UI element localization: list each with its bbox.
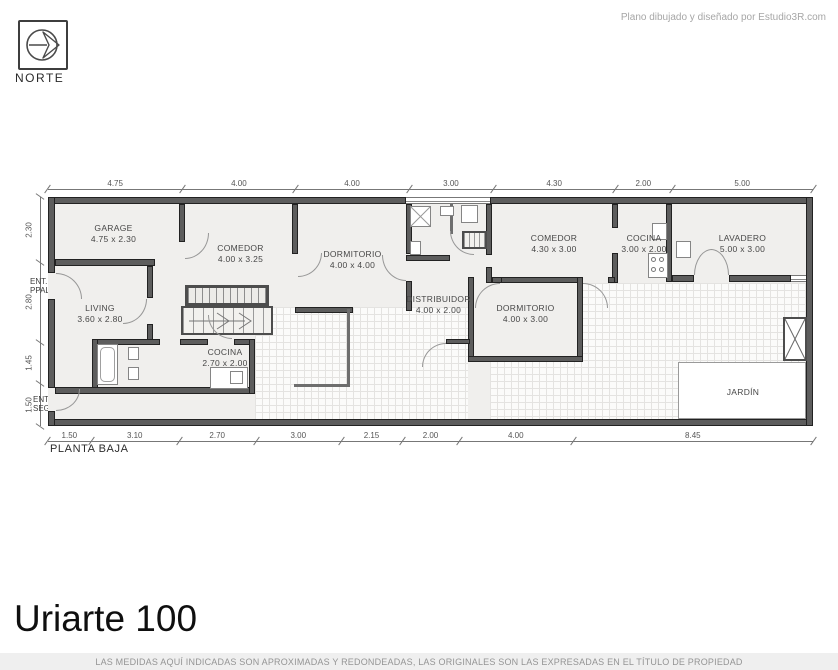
dimension-segment: 1.50 — [48, 429, 91, 442]
dimension-value: 4.30 — [493, 179, 615, 188]
stair-landing — [185, 285, 269, 306]
disclaimer-bar: LAS MEDIDAS AQUÍ INDICADAS SON APROXIMAD… — [0, 653, 838, 670]
dimension-value: 3.10 — [91, 431, 179, 440]
dimension-value: 3.00 — [409, 179, 494, 188]
wall-segment — [147, 266, 153, 298]
room-label-dormitorio-2: DORMITORIO4.00 x 3.00 — [472, 303, 579, 325]
cross-lines — [785, 319, 805, 359]
wall-segment — [48, 411, 55, 426]
dimension-value: 2.15 — [341, 431, 402, 440]
washing-machine — [461, 205, 478, 223]
dimension-value: 4.00 — [459, 431, 573, 440]
dimension-value: 2.80 — [25, 294, 34, 310]
bathroom-sink — [440, 206, 454, 216]
kitchen-sink — [230, 371, 243, 384]
left-dimension-column: 2.302.801.451.50 — [24, 197, 41, 426]
room-label-cocina-1: COCINA2.70 x 2.00 — [178, 347, 272, 369]
dimension-value: 1.50 — [48, 431, 91, 440]
dimension-segment: 4.30 — [493, 174, 615, 190]
floor-plan: GARAGE4.75 x 2.30 COMEDOR4.00 x 3.25 DOR… — [48, 197, 813, 426]
wall-segment — [446, 339, 470, 344]
door-swing — [450, 231, 474, 255]
credit-text: Plano dibujado y diseñado por Estudio3R.… — [621, 12, 826, 23]
wall-segment — [608, 277, 615, 283]
dimension-value: 8.45 — [573, 431, 813, 440]
page-title: Uriarte 100 — [14, 598, 197, 640]
top-dimension-row: 4.754.004.003.004.302.005.00 — [48, 174, 813, 190]
north-arrow-icon — [18, 20, 68, 70]
room-label-comedor-1: COMEDOR4.00 x 3.25 — [193, 243, 288, 265]
wall-segment — [806, 197, 813, 426]
wall-segment — [612, 204, 618, 228]
north-arrow-glyph — [22, 24, 64, 66]
wall-segment — [295, 307, 353, 313]
wall-segment — [48, 419, 813, 426]
room-label-comedor-2: COMEDOR4.30 x 3.00 — [500, 233, 608, 255]
dimension-value: 2.70 — [179, 431, 256, 440]
wall-segment — [672, 275, 694, 282]
wall-segment — [490, 197, 813, 204]
wall-segment — [55, 259, 155, 266]
toilet — [410, 241, 421, 255]
door-swing — [56, 273, 82, 299]
room-label-garage: GARAGE4.75 x 2.30 — [66, 223, 161, 245]
room-label-dormitorio-1: DORMITORIO4.00 x 4.00 — [300, 249, 405, 271]
dimension-value: 1.45 — [25, 355, 34, 371]
dimension-segment: 8.45 — [573, 429, 813, 442]
dimension-value: 4.00 — [295, 179, 408, 188]
wall-segment — [729, 275, 791, 282]
door-swing — [56, 389, 80, 411]
dimension-segment: 5.00 — [672, 174, 813, 190]
wall-segment — [48, 197, 55, 273]
window — [791, 275, 806, 282]
dimension-segment: 4.00 — [459, 429, 573, 442]
dimension-segment: 2.80 — [24, 262, 41, 342]
dimension-segment: 2.30 — [24, 197, 41, 262]
wall-segment — [406, 255, 450, 261]
toilet — [128, 347, 139, 360]
room-label-lavadero: LAVADERO5.00 x 3.00 — [690, 233, 795, 255]
dimension-segment: 1.45 — [24, 342, 41, 383]
window — [406, 197, 490, 204]
north-label: NORTE — [15, 71, 64, 85]
wall-segment — [48, 197, 406, 204]
dimension-segment: 3.10 — [91, 429, 179, 442]
bathtub — [97, 344, 118, 385]
dimension-value: 2.00 — [402, 431, 459, 440]
room-label-cocina-2: COCINA3.00 x 2.00 — [598, 233, 690, 255]
bidet — [128, 367, 139, 380]
shower — [410, 206, 431, 227]
wall-segment — [292, 204, 298, 254]
room-label-jardin: JARDÍN — [693, 387, 793, 398]
dimension-segment: 4.00 — [295, 174, 408, 190]
dimension-value: 4.75 — [48, 179, 182, 188]
wall-segment — [468, 356, 583, 362]
dimension-value: 3.00 — [256, 431, 341, 440]
plan-title: PLANTA BAJA — [50, 443, 129, 455]
low-wall — [294, 384, 350, 387]
dimension-segment: 2.70 — [179, 429, 256, 442]
dimension-segment: 3.00 — [409, 174, 494, 190]
disclaimer-text: LAS MEDIDAS AQUÍ INDICADAS SON APROXIMAD… — [95, 657, 742, 667]
low-wall — [347, 309, 350, 387]
dimension-segment: 2.00 — [402, 429, 459, 442]
dimension-segment: 4.75 — [48, 174, 182, 190]
floor-plan-sheet: Plano dibujado y diseñado por Estudio3R.… — [0, 0, 838, 670]
stair-up-symbol — [783, 317, 807, 361]
room-label-living: LIVING3.60 x 2.80 — [54, 303, 146, 325]
dimension-value: 4.00 — [182, 179, 295, 188]
wall-segment — [500, 277, 582, 283]
dimension-segment: 3.00 — [256, 429, 341, 442]
bottom-dimension-row: 1.503.102.703.002.152.004.008.45 — [48, 429, 813, 442]
wall-segment — [180, 339, 208, 345]
dimension-value: 5.00 — [672, 179, 813, 188]
dimension-segment: 4.00 — [182, 174, 295, 190]
dimension-value: 2.30 — [25, 222, 34, 238]
dimension-value: 2.00 — [615, 179, 672, 188]
stove — [648, 253, 668, 278]
dimension-segment: 2.00 — [615, 174, 672, 190]
dimension-segment: 2.15 — [341, 429, 402, 442]
